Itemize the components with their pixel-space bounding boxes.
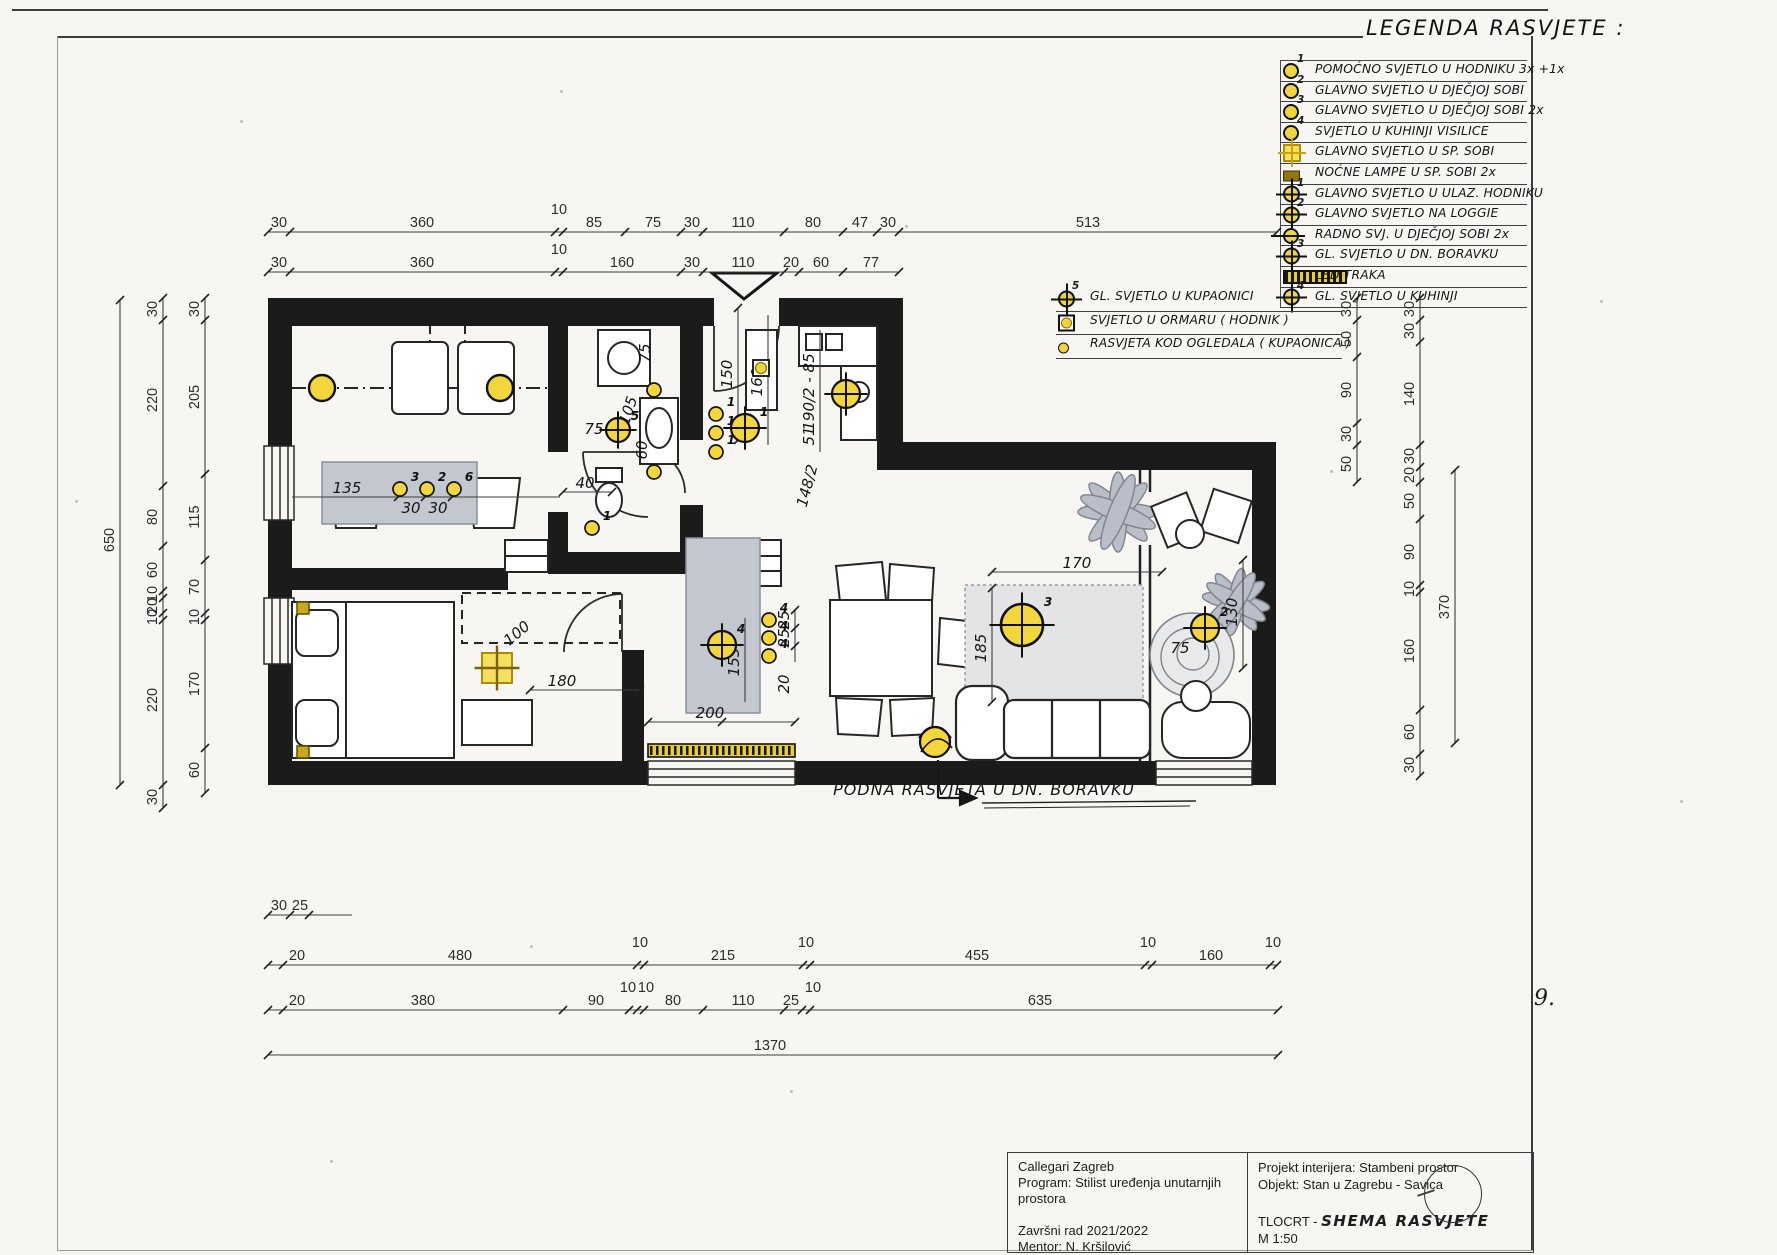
svg-text:30: 30 bbox=[1339, 301, 1355, 317]
drawing-sheet: LEGENDA RASVJETE : 1POMOĆNO SVJETLO U HO… bbox=[0, 0, 1777, 1255]
svg-text:10: 10 bbox=[620, 980, 636, 996]
svg-text:148/2: 148/2 bbox=[793, 462, 822, 508]
svg-text:47: 47 bbox=[852, 215, 868, 231]
svg-text:77: 77 bbox=[863, 255, 879, 271]
svg-text:60: 60 bbox=[187, 762, 203, 778]
title-block-line: Program: Stilist uređenja unutarnjih pro… bbox=[1018, 1175, 1247, 1207]
svg-text:30: 30 bbox=[684, 215, 700, 231]
svg-text:85: 85 bbox=[586, 215, 602, 231]
svg-text:25: 25 bbox=[783, 993, 799, 1009]
svg-text:90: 90 bbox=[1339, 382, 1355, 398]
svg-text:10: 10 bbox=[805, 980, 821, 996]
svg-text:30: 30 bbox=[1402, 448, 1418, 464]
svg-text:30: 30 bbox=[145, 301, 161, 317]
svg-text:10: 10 bbox=[1402, 581, 1418, 597]
svg-text:90: 90 bbox=[588, 993, 604, 1009]
plant-living bbox=[1078, 472, 1159, 553]
svg-text:10: 10 bbox=[187, 609, 203, 625]
svg-text:150: 150 bbox=[718, 360, 736, 389]
svg-text:100: 100 bbox=[500, 617, 534, 649]
svg-text:10: 10 bbox=[145, 609, 161, 625]
svg-text:1: 1 bbox=[603, 509, 611, 523]
svg-text:185: 185 bbox=[972, 634, 990, 663]
light-symbol-bulb bbox=[309, 375, 335, 401]
svg-text:10: 10 bbox=[1265, 935, 1281, 951]
svg-text:370: 370 bbox=[1437, 595, 1453, 619]
svg-text:115: 115 bbox=[187, 505, 203, 528]
dining-set bbox=[830, 562, 976, 736]
title-block-right: Projekt interijera: Stambeni prostor Obj… bbox=[1248, 1153, 1533, 1252]
svg-text:1370: 1370 bbox=[754, 1038, 786, 1054]
svg-text:10: 10 bbox=[551, 202, 567, 218]
svg-text:650: 650 bbox=[102, 528, 118, 552]
light-symbol-nightsq bbox=[297, 746, 309, 758]
light-symbol-mini bbox=[647, 383, 661, 397]
floor-light-annotation: PODNA RASVJETA U DN. BORAVKU bbox=[833, 780, 1135, 799]
svg-text:20: 20 bbox=[289, 993, 305, 1009]
svg-text:3: 3 bbox=[411, 470, 419, 484]
svg-text:180: 180 bbox=[548, 672, 577, 690]
svg-text:10: 10 bbox=[1140, 935, 1156, 951]
svg-text:40: 40 bbox=[575, 474, 594, 492]
svg-text:70: 70 bbox=[187, 579, 203, 595]
svg-text:140: 140 bbox=[1402, 382, 1418, 406]
drawing-scale: M 1:50 bbox=[1258, 1230, 1298, 1247]
light-symbol-mini bbox=[647, 465, 661, 479]
svg-text:75: 75 bbox=[636, 343, 654, 362]
svg-text:30: 30 bbox=[1402, 323, 1418, 339]
svg-text:480: 480 bbox=[448, 948, 472, 964]
svg-text:30: 30 bbox=[271, 215, 287, 231]
title-block-line bbox=[1018, 1207, 1247, 1223]
svg-text:60: 60 bbox=[145, 562, 161, 578]
svg-text:4: 4 bbox=[779, 601, 788, 615]
entrance-triangle bbox=[712, 273, 777, 299]
svg-text:30: 30 bbox=[401, 499, 420, 517]
floor-plan: PODNA RASVJETA U DN. BORAVKU 30360108575… bbox=[0, 0, 1777, 1255]
svg-text:200: 200 bbox=[696, 704, 725, 722]
title-block-line: Mentor: N. Kršilović bbox=[1018, 1239, 1247, 1255]
svg-text:110: 110 bbox=[731, 215, 754, 231]
svg-text:110: 110 bbox=[731, 255, 754, 271]
svg-text:80: 80 bbox=[145, 509, 161, 525]
logo-circle bbox=[1424, 1165, 1482, 1223]
svg-text:10: 10 bbox=[638, 980, 654, 996]
svg-text:2: 2 bbox=[1220, 605, 1228, 619]
svg-text:30: 30 bbox=[187, 301, 203, 317]
svg-text:30: 30 bbox=[880, 215, 896, 231]
svg-text:30: 30 bbox=[684, 255, 700, 271]
svg-text:513: 513 bbox=[1076, 215, 1100, 231]
svg-text:380: 380 bbox=[411, 993, 435, 1009]
object-line: Objekt: Stan u Zagrebu - Savica bbox=[1258, 1176, 1533, 1193]
svg-text:80: 80 bbox=[665, 993, 681, 1009]
svg-text:110: 110 bbox=[731, 993, 754, 1009]
light-symbol-floor bbox=[919, 727, 952, 757]
svg-text:60: 60 bbox=[633, 440, 651, 459]
title-block-line: Callegari Zagreb bbox=[1018, 1159, 1247, 1175]
svg-text:60: 60 bbox=[813, 255, 829, 271]
svg-text:80: 80 bbox=[805, 215, 821, 231]
svg-text:20: 20 bbox=[775, 674, 793, 693]
svg-text:30: 30 bbox=[145, 789, 161, 805]
svg-text:10: 10 bbox=[551, 242, 567, 258]
svg-text:160: 160 bbox=[610, 255, 634, 271]
svg-text:170: 170 bbox=[187, 672, 203, 696]
light-symbol-mini: 1 bbox=[585, 509, 611, 535]
light-symbol-nightsq bbox=[297, 602, 309, 614]
svg-text:215: 215 bbox=[711, 948, 735, 964]
childrens-room-furniture bbox=[292, 326, 548, 572]
svg-text:1: 1 bbox=[727, 395, 735, 409]
living-room-furniture bbox=[956, 585, 1150, 760]
svg-text:170: 170 bbox=[1063, 554, 1092, 572]
led-strip bbox=[648, 744, 795, 757]
svg-text:30: 30 bbox=[271, 898, 287, 914]
title-block-line: Završni rad 2021/2022 bbox=[1018, 1223, 1247, 1239]
svg-text:20: 20 bbox=[289, 948, 305, 964]
svg-text:635: 635 bbox=[1028, 993, 1052, 1009]
svg-text:4: 4 bbox=[779, 619, 788, 633]
svg-text:360: 360 bbox=[410, 255, 434, 271]
svg-text:190/2 - 85: 190/2 - 85 bbox=[800, 353, 818, 430]
svg-text:51: 51 bbox=[800, 426, 818, 445]
light-symbol-sqcircle bbox=[753, 360, 769, 376]
svg-text:160: 160 bbox=[1402, 639, 1418, 663]
svg-text:30: 30 bbox=[1402, 757, 1418, 773]
svg-text:5: 5 bbox=[631, 409, 639, 423]
svg-text:50: 50 bbox=[1339, 456, 1355, 472]
svg-text:205: 205 bbox=[187, 385, 203, 409]
page-number: 9. bbox=[1534, 986, 1555, 1011]
svg-text:60: 60 bbox=[1402, 724, 1418, 740]
svg-text:30: 30 bbox=[1339, 426, 1355, 442]
svg-text:1: 1 bbox=[760, 405, 768, 419]
svg-text:30: 30 bbox=[428, 499, 447, 517]
svg-text:75: 75 bbox=[645, 215, 661, 231]
svg-text:4: 4 bbox=[736, 622, 745, 636]
svg-text:50: 50 bbox=[1402, 493, 1418, 509]
svg-text:220: 220 bbox=[145, 388, 161, 412]
title-block-left: Callegari ZagrebProgram: Stilist uređenj… bbox=[1008, 1153, 1248, 1252]
svg-text:75: 75 bbox=[1170, 639, 1189, 657]
svg-text:455: 455 bbox=[965, 948, 989, 964]
light-symbol-bulb bbox=[487, 375, 513, 401]
svg-text:30: 30 bbox=[1402, 301, 1418, 317]
svg-text:10: 10 bbox=[632, 935, 648, 951]
svg-text:360: 360 bbox=[410, 215, 434, 231]
svg-text:20: 20 bbox=[1402, 467, 1418, 483]
svg-text:10: 10 bbox=[798, 935, 814, 951]
svg-text:135: 135 bbox=[333, 479, 362, 497]
project-line: Projekt interijera: Stambeni prostor bbox=[1258, 1159, 1533, 1176]
svg-text:2: 2 bbox=[438, 470, 446, 484]
svg-text:20: 20 bbox=[783, 255, 799, 271]
svg-text:3: 3 bbox=[1044, 595, 1052, 609]
svg-text:4: 4 bbox=[779, 637, 788, 651]
svg-text:25: 25 bbox=[292, 898, 308, 914]
svg-text:50: 50 bbox=[1339, 331, 1355, 347]
svg-text:160: 160 bbox=[1199, 948, 1223, 964]
svg-text:220: 220 bbox=[145, 688, 161, 712]
svg-text:90: 90 bbox=[1402, 544, 1418, 560]
svg-text:30: 30 bbox=[271, 255, 287, 271]
light-symbol-sqcross bbox=[475, 646, 520, 691]
svg-text:6: 6 bbox=[465, 470, 473, 484]
